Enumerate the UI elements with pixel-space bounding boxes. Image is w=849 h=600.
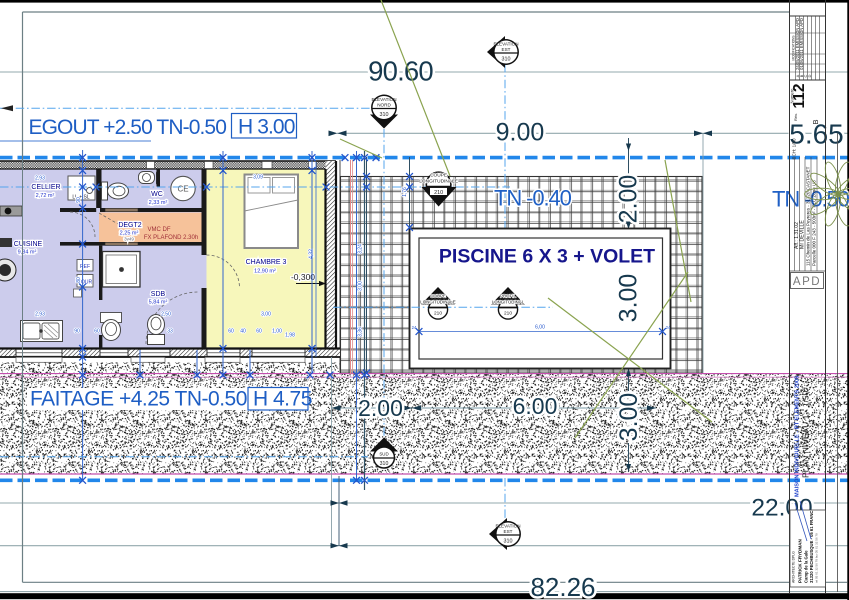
svg-text:115 Chemin de Las Peyreres - 3: 115 Chemin de Las Peyreres - 31320 CASTA… bbox=[806, 166, 811, 266]
svg-text:LONGITUDINAL: LONGITUDINAL bbox=[492, 300, 525, 305]
svg-text:LONGITUDINALE: LONGITUDINALE bbox=[420, 300, 455, 305]
svg-text:3.00: 3.00 bbox=[615, 393, 643, 442]
svg-text:3.00: 3.00 bbox=[615, 274, 643, 323]
svg-text:CHAMBRE 3: CHAMBRE 3 bbox=[246, 259, 287, 266]
svg-text:tel 05 61 32 56 78 fax 05 61: tel 05 61 32 56 78 fax 05 61 32 56 79 bbox=[815, 533, 819, 583]
svg-text:SDB: SDB bbox=[151, 291, 166, 298]
svg-text:DEGT2: DEGT2 bbox=[118, 222, 141, 229]
svg-text:1,98: 1,98 bbox=[285, 333, 295, 339]
svg-text:H 4.75: H 4.75 bbox=[253, 388, 312, 411]
svg-text:31320 PECHBUSQUE - 05 61 FRANC: 31320 PECHBUSQUE - 05 61 FRANC bbox=[809, 511, 814, 583]
svg-text:3,24: 3,24 bbox=[358, 244, 364, 254]
svg-text:Parcelle 000 F 243 - 503m² - P: Parcelle 000 F 243 - 503m² - PLU Zone U3 bbox=[812, 180, 817, 266]
svg-text:D: D bbox=[807, 74, 812, 77]
svg-text:1,76: 1,76 bbox=[402, 187, 408, 197]
svg-text:90: 90 bbox=[74, 329, 80, 335]
svg-text:2,93: 2,93 bbox=[35, 312, 45, 318]
svg-text:60: 60 bbox=[94, 329, 100, 335]
svg-text:TN -0.40: TN -0.40 bbox=[494, 186, 572, 211]
svg-text:112: 112 bbox=[791, 83, 808, 108]
svg-text:60: 60 bbox=[228, 329, 234, 335]
svg-text:ECH: 1/50: ECH: 1/50 bbox=[792, 138, 797, 160]
svg-text:EST: EST bbox=[504, 529, 513, 534]
svg-text:FAITAGE +4.25 TN-0.50: FAITAGE +4.25 TN-0.50 bbox=[30, 388, 247, 411]
svg-text:Rév.: Rév. bbox=[793, 113, 798, 121]
svg-text:ARCHITECTE DPLG: ARCHITECTE DPLG bbox=[791, 551, 795, 583]
svg-text:3v49: 3v49 bbox=[124, 237, 134, 242]
svg-text:PROFIL: PROFIL bbox=[500, 294, 516, 299]
svg-text:PLAN NIVEAU 1 - 1/50°: PLAN NIVEAU 1 - 1/50° bbox=[801, 387, 811, 478]
svg-text:90: 90 bbox=[76, 197, 82, 203]
svg-text:3,09: 3,09 bbox=[253, 175, 263, 181]
svg-text:NORD: NORD bbox=[377, 103, 391, 108]
svg-text:2,72 m²: 2,72 m² bbox=[36, 193, 55, 199]
svg-text:310: 310 bbox=[502, 57, 511, 63]
svg-text:2.00: 2.00 bbox=[358, 395, 403, 421]
svg-text:ELEVATION: ELEVATION bbox=[371, 97, 396, 102]
svg-text:APD: APD bbox=[793, 276, 821, 288]
svg-text:COUPE: COUPE bbox=[430, 173, 447, 179]
svg-text:2,93: 2,93 bbox=[35, 176, 45, 182]
svg-text:3,00: 3,00 bbox=[261, 312, 271, 318]
svg-text:COUPE: COUPE bbox=[430, 294, 446, 299]
svg-text:210: 210 bbox=[504, 311, 512, 317]
svg-text:H 3.00: H 3.00 bbox=[238, 116, 295, 139]
svg-text:210: 210 bbox=[434, 190, 443, 196]
svg-text:CUISINE: CUISINE bbox=[14, 241, 43, 248]
svg-text:CE: CE bbox=[177, 185, 188, 194]
svg-text:CELLIER: CELLIER bbox=[31, 184, 60, 191]
svg-text:WC: WC bbox=[151, 191, 163, 198]
svg-text:82.26: 82.26 bbox=[530, 572, 595, 600]
svg-text:33: 33 bbox=[167, 329, 173, 335]
svg-text:310: 310 bbox=[380, 112, 389, 118]
svg-text:EST: EST bbox=[502, 47, 511, 52]
svg-text:90.60: 90.60 bbox=[368, 56, 433, 87]
svg-text:2,50: 2,50 bbox=[161, 312, 171, 318]
svg-text:2.00: 2.00 bbox=[615, 175, 643, 224]
svg-text:9.00: 9.00 bbox=[496, 119, 545, 147]
svg-text:40: 40 bbox=[240, 329, 246, 335]
svg-text:LONGITUDINALE: LONGITUDINALE bbox=[419, 179, 458, 185]
svg-text:5,84 m²: 5,84 m² bbox=[149, 300, 168, 306]
svg-text:PISCINE 6 X 3 + VOLET: PISCINE 6 X 3 + VOLET bbox=[439, 246, 655, 268]
svg-text:210: 210 bbox=[434, 311, 442, 317]
svg-text:9,84 m²: 9,84 m² bbox=[18, 250, 37, 256]
svg-text:FX PLAFOND 2.30h: FX PLAFOND 2.30h bbox=[144, 235, 198, 241]
svg-text:ELEVATION: ELEVATION bbox=[495, 524, 520, 529]
svg-text:2,33 m²: 2,33 m² bbox=[149, 200, 168, 206]
svg-text:310: 310 bbox=[380, 461, 389, 467]
svg-text:REF: REF bbox=[80, 264, 90, 270]
svg-text:6,00: 6,00 bbox=[535, 325, 545, 331]
svg-text:SUD: SUD bbox=[379, 452, 388, 457]
svg-text:ELEVATION: ELEVATION bbox=[493, 42, 518, 47]
svg-text:EGOUT +2.50 TN-0.50: EGOUT +2.50 TN-0.50 bbox=[29, 116, 227, 139]
svg-text:B: B bbox=[811, 119, 820, 124]
svg-text:3,00: 3,00 bbox=[358, 281, 364, 291]
svg-text:12,90 m²: 12,90 m² bbox=[254, 269, 276, 275]
svg-text:PATRICK FRYDMAN: PATRICK FRYDMAN bbox=[797, 539, 802, 583]
svg-text:24: 24 bbox=[666, 325, 671, 330]
svg-text:6.00: 6.00 bbox=[513, 393, 558, 419]
svg-text:80: 80 bbox=[76, 277, 82, 283]
svg-text:VMC DF: VMC DF bbox=[148, 227, 171, 233]
svg-text:01/06/2011 EMISSION APD: 01/06/2011 EMISSION APD bbox=[799, 18, 804, 70]
svg-text:3,36: 3,36 bbox=[358, 327, 364, 337]
svg-text:310: 310 bbox=[504, 539, 513, 545]
svg-text:1,00: 1,00 bbox=[272, 329, 282, 335]
svg-text:60: 60 bbox=[256, 329, 262, 335]
